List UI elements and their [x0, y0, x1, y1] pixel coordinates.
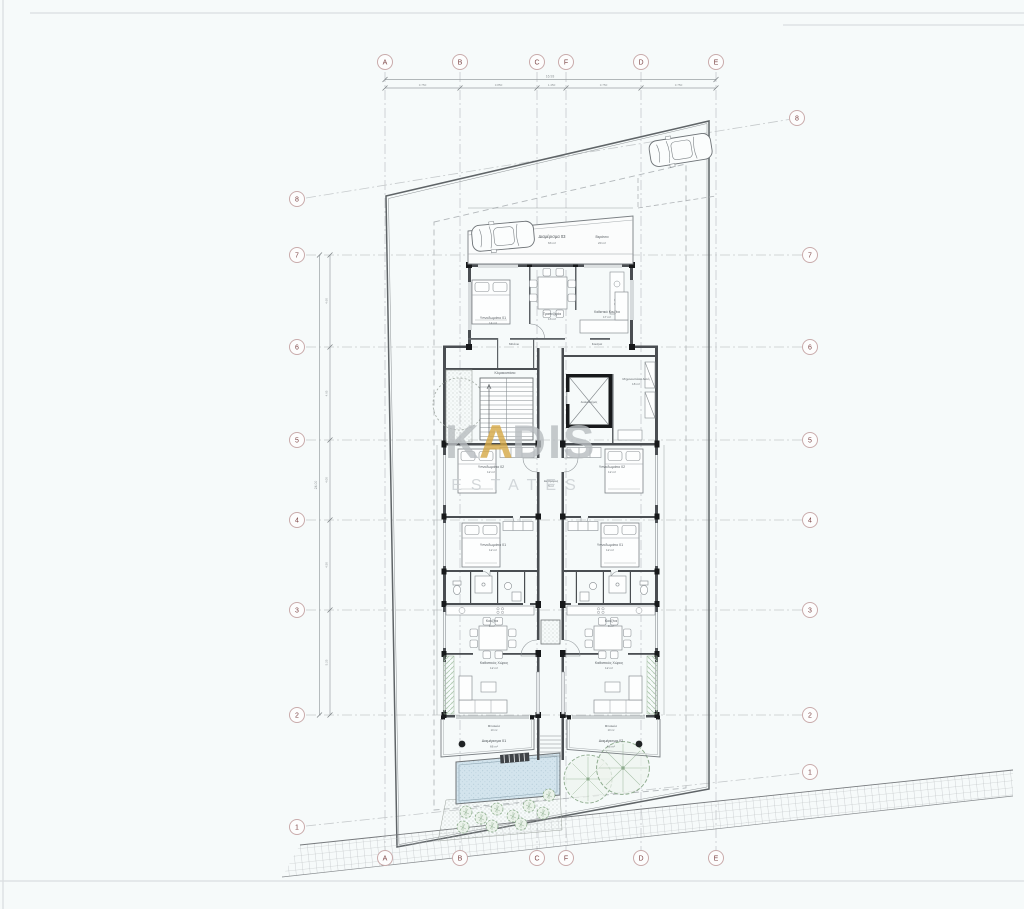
apt01-area: 66 m²	[490, 745, 498, 749]
grid-row-2-right: 2	[808, 713, 812, 720]
grid-col-b-bottom: B	[458, 856, 463, 863]
dim-top-5: 3.750	[675, 83, 683, 87]
living-right-label: Καθιστικός Χώρος	[595, 661, 624, 665]
grid-col-d-top: D	[638, 60, 643, 67]
parked-car-street	[648, 130, 714, 170]
dim-left-2: 4.65	[325, 390, 329, 396]
balcony-right-label: Μπαλκόνι	[605, 724, 618, 728]
apt02-name: Διαμέρισμα 02	[599, 739, 623, 743]
watermark-a: A	[479, 415, 515, 468]
kitchen-right-area: 8 m²	[608, 624, 614, 628]
bedroom01-right-area: 12 m²	[606, 548, 614, 552]
grid-col-a-bottom: A	[383, 856, 388, 863]
dim-left-1: 4.60	[325, 298, 329, 304]
watermark-dis: DIS	[512, 415, 596, 468]
apt02-area: 66 m²	[607, 745, 615, 749]
dining-set-top	[530, 269, 576, 318]
watermark-k: K	[445, 415, 481, 468]
grid-col-a-top: A	[383, 60, 388, 67]
veranda03-area: 20 m²	[598, 241, 606, 245]
grid-col-f-top: F	[564, 60, 568, 67]
grid-row-8-left: 8	[295, 197, 299, 204]
machine-room	[612, 362, 655, 443]
dim-left-4: 4.50	[325, 562, 329, 568]
floor-plan-drawing: 16.93 3.750 3.850 1.450 3.750 3.750 4.60…	[0, 0, 1024, 909]
balcony-left-area: 10 m²	[491, 728, 498, 732]
core-bottom	[540, 620, 561, 756]
dim-top-2: 3.850	[495, 83, 503, 87]
kitchen-right-label: Κουζίνα	[605, 619, 617, 623]
living-top-label: Καθιστικό Κουζίνα	[594, 310, 620, 314]
bedroom-top-area: 14 m²	[489, 321, 497, 325]
bath-top-label: Μπάνιο	[509, 342, 519, 346]
grid-col-f-bottom: F	[564, 856, 568, 863]
grid-row-2-left: 2	[295, 713, 299, 720]
apt03-area: 63 m²	[548, 241, 556, 245]
grid-col-e-top: E	[714, 60, 719, 67]
grid-row-4-right: 4	[808, 518, 812, 525]
living-kitchen-top	[580, 272, 628, 333]
machine-room-label: Μηχανοστάσιο Αυλή	[623, 377, 650, 381]
living-right-area: 12 m²	[605, 666, 613, 670]
grid-col-c-top: C	[534, 60, 539, 67]
grid-row-1-right: 1	[808, 770, 812, 777]
dim-top-1: 3.750	[419, 83, 427, 87]
grid-row-8-right: 8	[795, 116, 799, 123]
bedroom01-right-label: Υπνοδωμάτιο 01	[597, 543, 623, 547]
living-top-area: 17 m²	[603, 315, 611, 319]
living-left-area: 12 m²	[490, 666, 498, 670]
bedroom01-left-area: 12 m²	[489, 548, 497, 552]
bedroom02-right-label: Υπνοδωμάτιο 02	[599, 465, 625, 469]
grid-col-d-bottom: D	[638, 856, 643, 863]
dim-top-3: 1.450	[548, 83, 556, 87]
grid-row-3-right: 3	[808, 608, 812, 615]
watermark-sub: ESTATES	[451, 477, 585, 494]
bedroom01-left-label: Υπνοδωμάτιο 01	[480, 543, 506, 547]
bedroom02-right-area: 12 m²	[608, 470, 616, 474]
watermark: K A DIS ESTATES	[445, 415, 596, 494]
machine-room-area: 18 m²	[632, 382, 640, 386]
dim-left-3: 4.00	[325, 477, 329, 483]
grid-row-5-left: 5	[295, 438, 299, 445]
apt03-name: Διαμέρισμα 03	[539, 234, 567, 239]
kitchen-top-label: Κουζίνα	[592, 342, 603, 346]
grid-row-4-left: 4	[295, 518, 299, 525]
parking-stall-lines	[638, 178, 716, 208]
grid-row-6-right: 6	[808, 345, 812, 352]
grid-row-5-right: 5	[808, 438, 812, 445]
grid-row-6-left: 6	[295, 345, 299, 352]
grid-col-b-top: B	[458, 60, 463, 67]
balcony-left-label: Μπαλκόνι	[488, 724, 501, 728]
dim-left-5: 5.25	[325, 659, 329, 665]
kitchen-left-label: Κουζίνα	[486, 619, 498, 623]
dim-top-4: 3.750	[600, 83, 608, 87]
grid-row-3-left: 3	[295, 608, 299, 615]
grid-row-7-right: 7	[808, 253, 812, 260]
veranda03-label: Βεράντα	[595, 235, 608, 239]
grid-row-7-left: 7	[295, 253, 299, 260]
kitchen-left-area: 8 m²	[489, 624, 495, 628]
bedroom-top-label: Υπνοδωμάτιο 01	[480, 316, 506, 320]
grid-col-e-bottom: E	[714, 856, 719, 863]
balcony-right-area: 10 m²	[608, 728, 615, 732]
dim-left-total: 24.00	[314, 481, 318, 490]
living-left-label: Καθιστικός Χώρος	[480, 661, 509, 665]
grid-row-1-left: 1	[295, 825, 299, 832]
apt01-name: Διαμέρισμα 01	[482, 739, 506, 743]
bedroom02-left-area: 12 m²	[487, 470, 495, 474]
grid-col-c-bottom: C	[534, 856, 539, 863]
stairs-label: Κλιμακοστάσιο	[495, 371, 516, 375]
dining-top-label: Τραπεζαρία	[543, 312, 561, 316]
elevator-label: Ανελκυστήρας	[581, 400, 598, 404]
dining-top-area: 13 m²	[548, 317, 556, 321]
dim-top-total: 16.93	[546, 75, 555, 79]
